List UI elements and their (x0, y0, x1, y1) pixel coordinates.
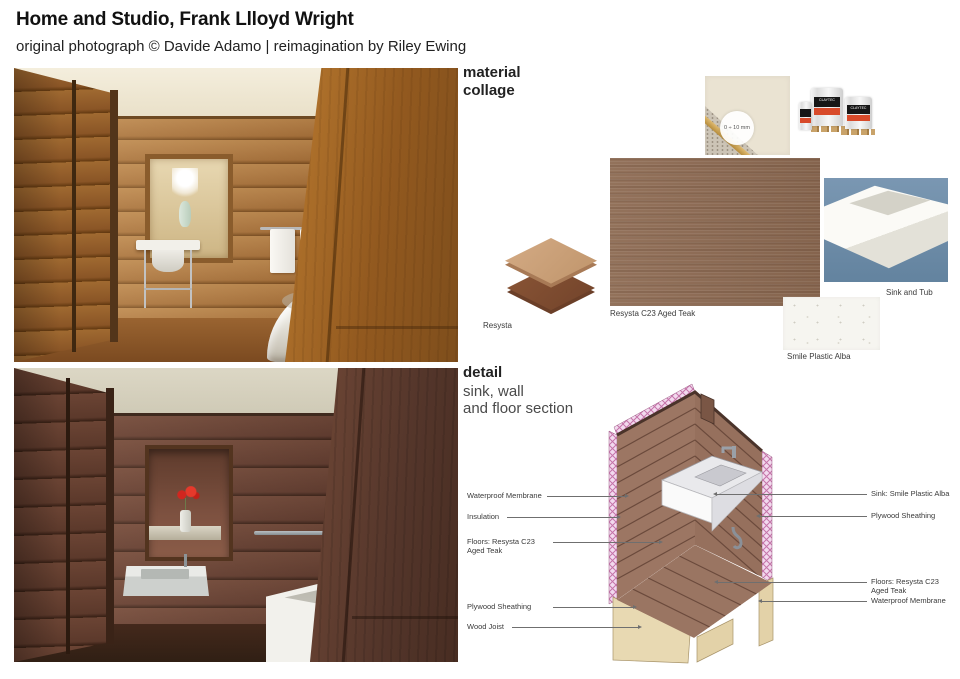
photo-reimagined (14, 368, 458, 662)
detail-heading: detail (463, 364, 502, 382)
resysta-c23-swatch (610, 158, 820, 306)
sink-leg-bar (144, 288, 192, 290)
left-wall (14, 368, 114, 662)
insulation-band-right (762, 451, 772, 583)
detail-label-plywood-left: Plywood Sheathing (467, 602, 551, 611)
leader-line (717, 494, 867, 495)
flower-red (174, 486, 200, 502)
resysta-label: Resysta (483, 321, 512, 330)
leader-line (760, 516, 867, 517)
leader-arrow (756, 514, 760, 518)
detail-label-sink-smile: Sink: Smile Plastic Alba (871, 489, 957, 498)
leader-line (762, 601, 867, 602)
leader-arrow (638, 625, 642, 629)
sink-leg-right (190, 250, 192, 308)
leader-arrow (633, 605, 637, 609)
bucket-label-black: CLAYTEC (847, 105, 870, 114)
bucket-large: CLAYTEC (811, 88, 843, 126)
bucket-label-red (847, 115, 870, 121)
section-diagram (595, 382, 795, 677)
leader-line (553, 542, 659, 543)
page-subtitle: original photograph © Davide Adamo | rei… (16, 38, 466, 55)
leader-line (507, 517, 617, 518)
sink-basin (141, 569, 189, 579)
detail-label-waterproof-membrane-left: Waterproof Membrane (467, 491, 551, 500)
bucket-medium: CLAYTEC (845, 97, 872, 129)
sink-faucet (184, 554, 187, 567)
vase (180, 510, 191, 532)
sink-tub-label: Sink and Tub (886, 288, 933, 297)
detail-subheading-1: sink, wall (463, 383, 524, 400)
grain-size-badge: 0 ÷ 10 mm (720, 111, 754, 145)
sink-slab (136, 240, 200, 250)
leader-arrow (758, 599, 762, 603)
towel-left (270, 229, 295, 273)
pallet-right (841, 129, 875, 135)
page-title: Home and Studio, Frank Llloyd Wright (16, 9, 354, 31)
bucket-label-red (800, 118, 811, 123)
niche (145, 445, 233, 561)
smile-plastic-label: Smile Plastic Alba (787, 352, 851, 361)
right-door-rail (336, 326, 458, 329)
detail-label-floors-left: Floors: Resysta C23 Aged Teak (467, 537, 551, 555)
leader-arrow (617, 515, 621, 519)
leader-arrow (714, 580, 718, 584)
sink-tub-photo (824, 178, 948, 282)
clay-plaster-sample: 0 ÷ 10 mm (705, 76, 790, 155)
photo-original (14, 68, 458, 362)
resysta-panels (505, 236, 597, 320)
collage-heading-line1: material (463, 64, 521, 82)
bucket-small (799, 102, 812, 130)
sink-basin (152, 250, 184, 272)
detail-label-plywood-right: Plywood Sheathing (871, 511, 957, 520)
bucket-label-black (800, 109, 811, 117)
leader-arrow (625, 494, 629, 498)
leader-arrow (713, 492, 717, 496)
faucet (732, 446, 736, 458)
detail-label-floors-right: Floors: Resysta C23 Aged Teak (871, 577, 957, 595)
leader-line (718, 582, 867, 583)
left-door-frame (106, 388, 114, 644)
right-wall-rail (352, 616, 458, 619)
left-door-edge (72, 80, 76, 352)
window-flowers (172, 168, 198, 202)
sink-leg-left (144, 250, 146, 308)
left-wall (14, 68, 118, 362)
clay-buckets: CLAYTEC CLAYTEC (799, 74, 877, 136)
leader-line (553, 607, 633, 608)
smile-plastic-swatch (783, 297, 880, 350)
left-door-edge (66, 378, 70, 654)
bucket-label-red (814, 108, 841, 115)
pallet-left (811, 126, 845, 132)
window-vase (179, 201, 191, 227)
resysta-c23-label: Resysta C23 Aged Teak (610, 309, 695, 318)
detail-label-waterproof-membrane-right: Waterproof Membrane (871, 596, 960, 605)
leader-line (547, 496, 625, 497)
leader-line (512, 627, 638, 628)
detail-subheading-2: and floor section (463, 400, 573, 417)
collage-heading-line2: collage (463, 82, 515, 100)
presentation-board: Home and Studio, Frank Llloyd Wright ori… (0, 0, 960, 679)
left-door-frame (110, 90, 118, 342)
bucket-label-black: CLAYTEC (814, 97, 841, 107)
leader-arrow (659, 540, 663, 544)
